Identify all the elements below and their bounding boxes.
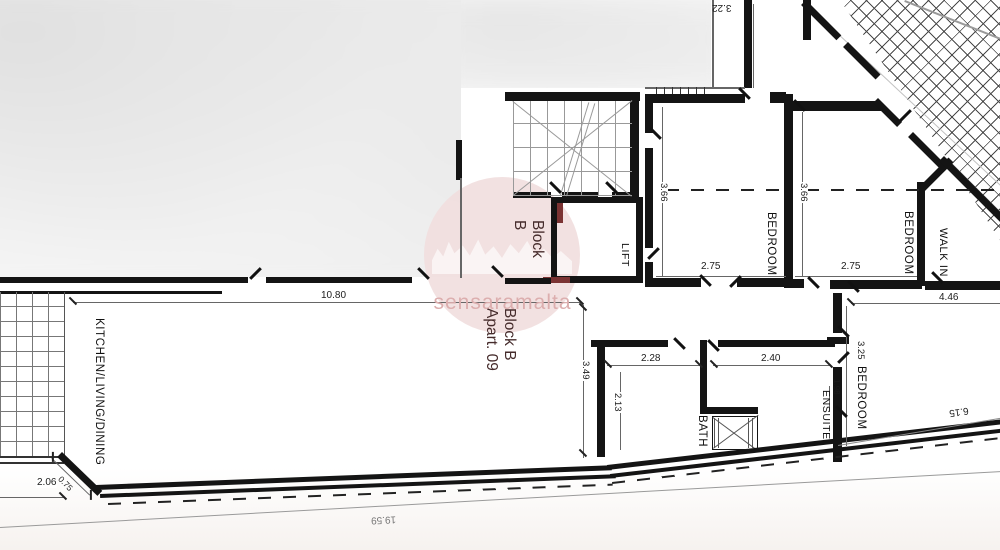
dim-ensuite-depth: 1.98 xyxy=(832,378,840,396)
dim-hall-bath-depth: 3.49 xyxy=(581,360,591,381)
door-tick xyxy=(649,127,662,140)
walkin-divider xyxy=(917,182,925,286)
label-bedroom-bottom-right: BEDROOM xyxy=(855,366,867,430)
dim-tick xyxy=(847,298,855,306)
dim-line xyxy=(713,365,831,366)
dim-line xyxy=(583,305,584,458)
dim-bath-width: 2.28 xyxy=(640,354,661,364)
planter-base xyxy=(0,456,64,458)
wall xyxy=(784,94,793,287)
dim-tick xyxy=(710,360,718,368)
dim-bedroom3-depth: 3.25 xyxy=(856,340,866,361)
dim-line xyxy=(753,4,754,88)
wall xyxy=(737,278,786,287)
dim-overall-bottom: 19.59 xyxy=(370,513,398,524)
stair-comb xyxy=(656,87,706,94)
planter-grid xyxy=(0,292,65,457)
dim-line xyxy=(846,306,847,446)
dim-terrace-left: 2.06 xyxy=(36,478,57,488)
lift-wall xyxy=(636,197,643,283)
shaft-hatch xyxy=(714,418,722,448)
wall xyxy=(456,140,462,180)
watermark-text: sensaramalta xyxy=(420,291,585,315)
dim-ensuite-width: 2.40 xyxy=(760,354,781,364)
door-tick xyxy=(899,109,912,122)
dim-upper-room: 3.22 xyxy=(711,2,732,12)
wall xyxy=(645,278,701,287)
label-lift: LIFT xyxy=(620,243,631,267)
dim-line xyxy=(607,365,701,366)
wall xyxy=(718,340,835,347)
blur-region-left xyxy=(0,0,461,277)
wall xyxy=(597,347,605,457)
label-bath: BATH xyxy=(696,415,708,447)
lobby-label: Block B xyxy=(510,220,546,258)
door-tick xyxy=(837,351,850,364)
wall xyxy=(591,340,668,347)
partition-line xyxy=(460,178,462,278)
dim-bath-depth: 2.13 xyxy=(613,392,623,413)
shaft-hatch xyxy=(748,418,756,448)
dim-line xyxy=(851,303,1000,304)
dim-line xyxy=(795,276,917,277)
dim-tick xyxy=(825,360,833,368)
wardrobe-line xyxy=(806,189,1000,191)
blur-region-top xyxy=(461,0,711,88)
wall xyxy=(700,407,758,414)
label-ensuite: ENSUITE xyxy=(821,390,832,440)
wall xyxy=(793,101,881,111)
lobby-label-line1: Block xyxy=(528,220,546,258)
door-tick xyxy=(807,276,820,289)
dim-living-width: 10.80 xyxy=(320,291,347,301)
wardrobe-line xyxy=(666,189,783,191)
dim-bedroom3-diagonal: 6.15 xyxy=(947,405,970,418)
dim-bedroom3-width: 4.46 xyxy=(938,293,959,303)
apartment-label-line1: Block B xyxy=(500,308,518,371)
label-walk-in: WALK IN xyxy=(937,228,948,277)
lift-wall xyxy=(551,197,643,203)
dim-tick xyxy=(69,297,77,305)
dim-tick xyxy=(90,490,92,500)
wall xyxy=(803,0,811,40)
dim-tick xyxy=(52,452,54,462)
label-bedroom-top-left: BEDROOM xyxy=(765,212,777,276)
dim-bedroom2-width: 2.75 xyxy=(840,262,861,272)
wall xyxy=(744,0,752,88)
dim-bedroom2-depth: 3.66 xyxy=(799,182,809,203)
diagonal-wall xyxy=(873,98,902,127)
wall xyxy=(784,279,804,288)
wall xyxy=(700,340,707,414)
wall xyxy=(925,281,1000,290)
dim-bedroom1-width: 2.75 xyxy=(700,262,721,272)
door-tick xyxy=(673,337,686,350)
apartment-label-line2: Apart. 09 xyxy=(482,308,500,371)
dim-bedroom1-depth: 3.66 xyxy=(659,182,669,203)
lift-door-stub xyxy=(557,203,563,223)
partition-line xyxy=(712,0,714,88)
stair-top-wall xyxy=(505,92,640,101)
dim-line xyxy=(0,497,64,498)
floor-plan: 10.80 2.06 0.75 19.59 3.49 2.28 2.40 2.1… xyxy=(0,0,1000,550)
door-tick xyxy=(647,247,660,260)
label-kitchen: KITCHEN/LIVING/DINING xyxy=(93,318,105,465)
wall xyxy=(266,277,412,283)
lobby-label-line2: B xyxy=(510,220,528,258)
wall xyxy=(645,148,653,248)
wall xyxy=(0,277,248,283)
label-bedroom-top-right: BEDROOM xyxy=(902,211,914,275)
apartment-label: Block B Apart. 09 xyxy=(482,308,518,371)
wall xyxy=(505,278,551,284)
dim-line xyxy=(656,276,786,277)
wall xyxy=(645,94,745,103)
wall xyxy=(830,280,922,289)
dim-tick xyxy=(604,360,612,368)
